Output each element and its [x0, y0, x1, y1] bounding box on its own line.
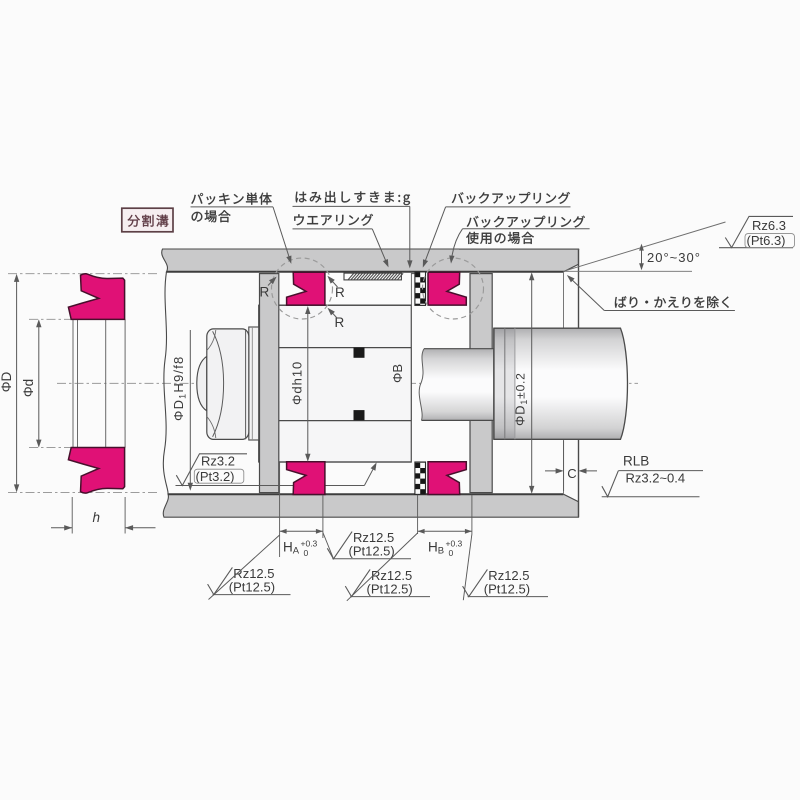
svg-text:RLB: RLB — [623, 453, 649, 468]
svg-text:0: 0 — [449, 548, 454, 558]
svg-text:ΦD1±0.2: ΦD1±0.2 — [513, 372, 530, 426]
svg-text:(Pt12.5): (Pt12.5) — [367, 581, 413, 596]
svg-text:(Pt3.2): (Pt3.2) — [196, 469, 235, 484]
svg-text:ΦD: ΦD — [0, 371, 14, 392]
svg-text:h: h — [93, 510, 101, 525]
svg-text:(Pt12.5): (Pt12.5) — [229, 579, 275, 594]
svg-text:Φdh10: Φdh10 — [290, 361, 305, 405]
svg-text:Rz3.2: Rz3.2 — [201, 454, 235, 469]
svg-text:C: C — [567, 466, 576, 481]
svg-text:(Pt12.5): (Pt12.5) — [349, 544, 395, 559]
svg-text:Φd: Φd — [21, 379, 36, 397]
svg-text:+0.3: +0.3 — [446, 539, 463, 549]
svg-text:R: R — [260, 285, 270, 300]
svg-text:ΦD1H9/f8: ΦD1H9/f8 — [171, 356, 188, 421]
svg-text:Rz3.2~0.4: Rz3.2~0.4 — [626, 470, 686, 485]
svg-text:R: R — [335, 285, 345, 300]
svg-text:(Pt6.3): (Pt6.3) — [747, 233, 786, 248]
svg-text:Rz6.3: Rz6.3 — [752, 218, 786, 233]
svg-text:+0.3: +0.3 — [301, 539, 318, 549]
svg-text:(Pt12.5): (Pt12.5) — [484, 581, 530, 596]
svg-text:ΦB: ΦB — [390, 364, 405, 383]
svg-text:0: 0 — [304, 548, 309, 558]
svg-text:20°~30°: 20°~30° — [647, 250, 701, 265]
